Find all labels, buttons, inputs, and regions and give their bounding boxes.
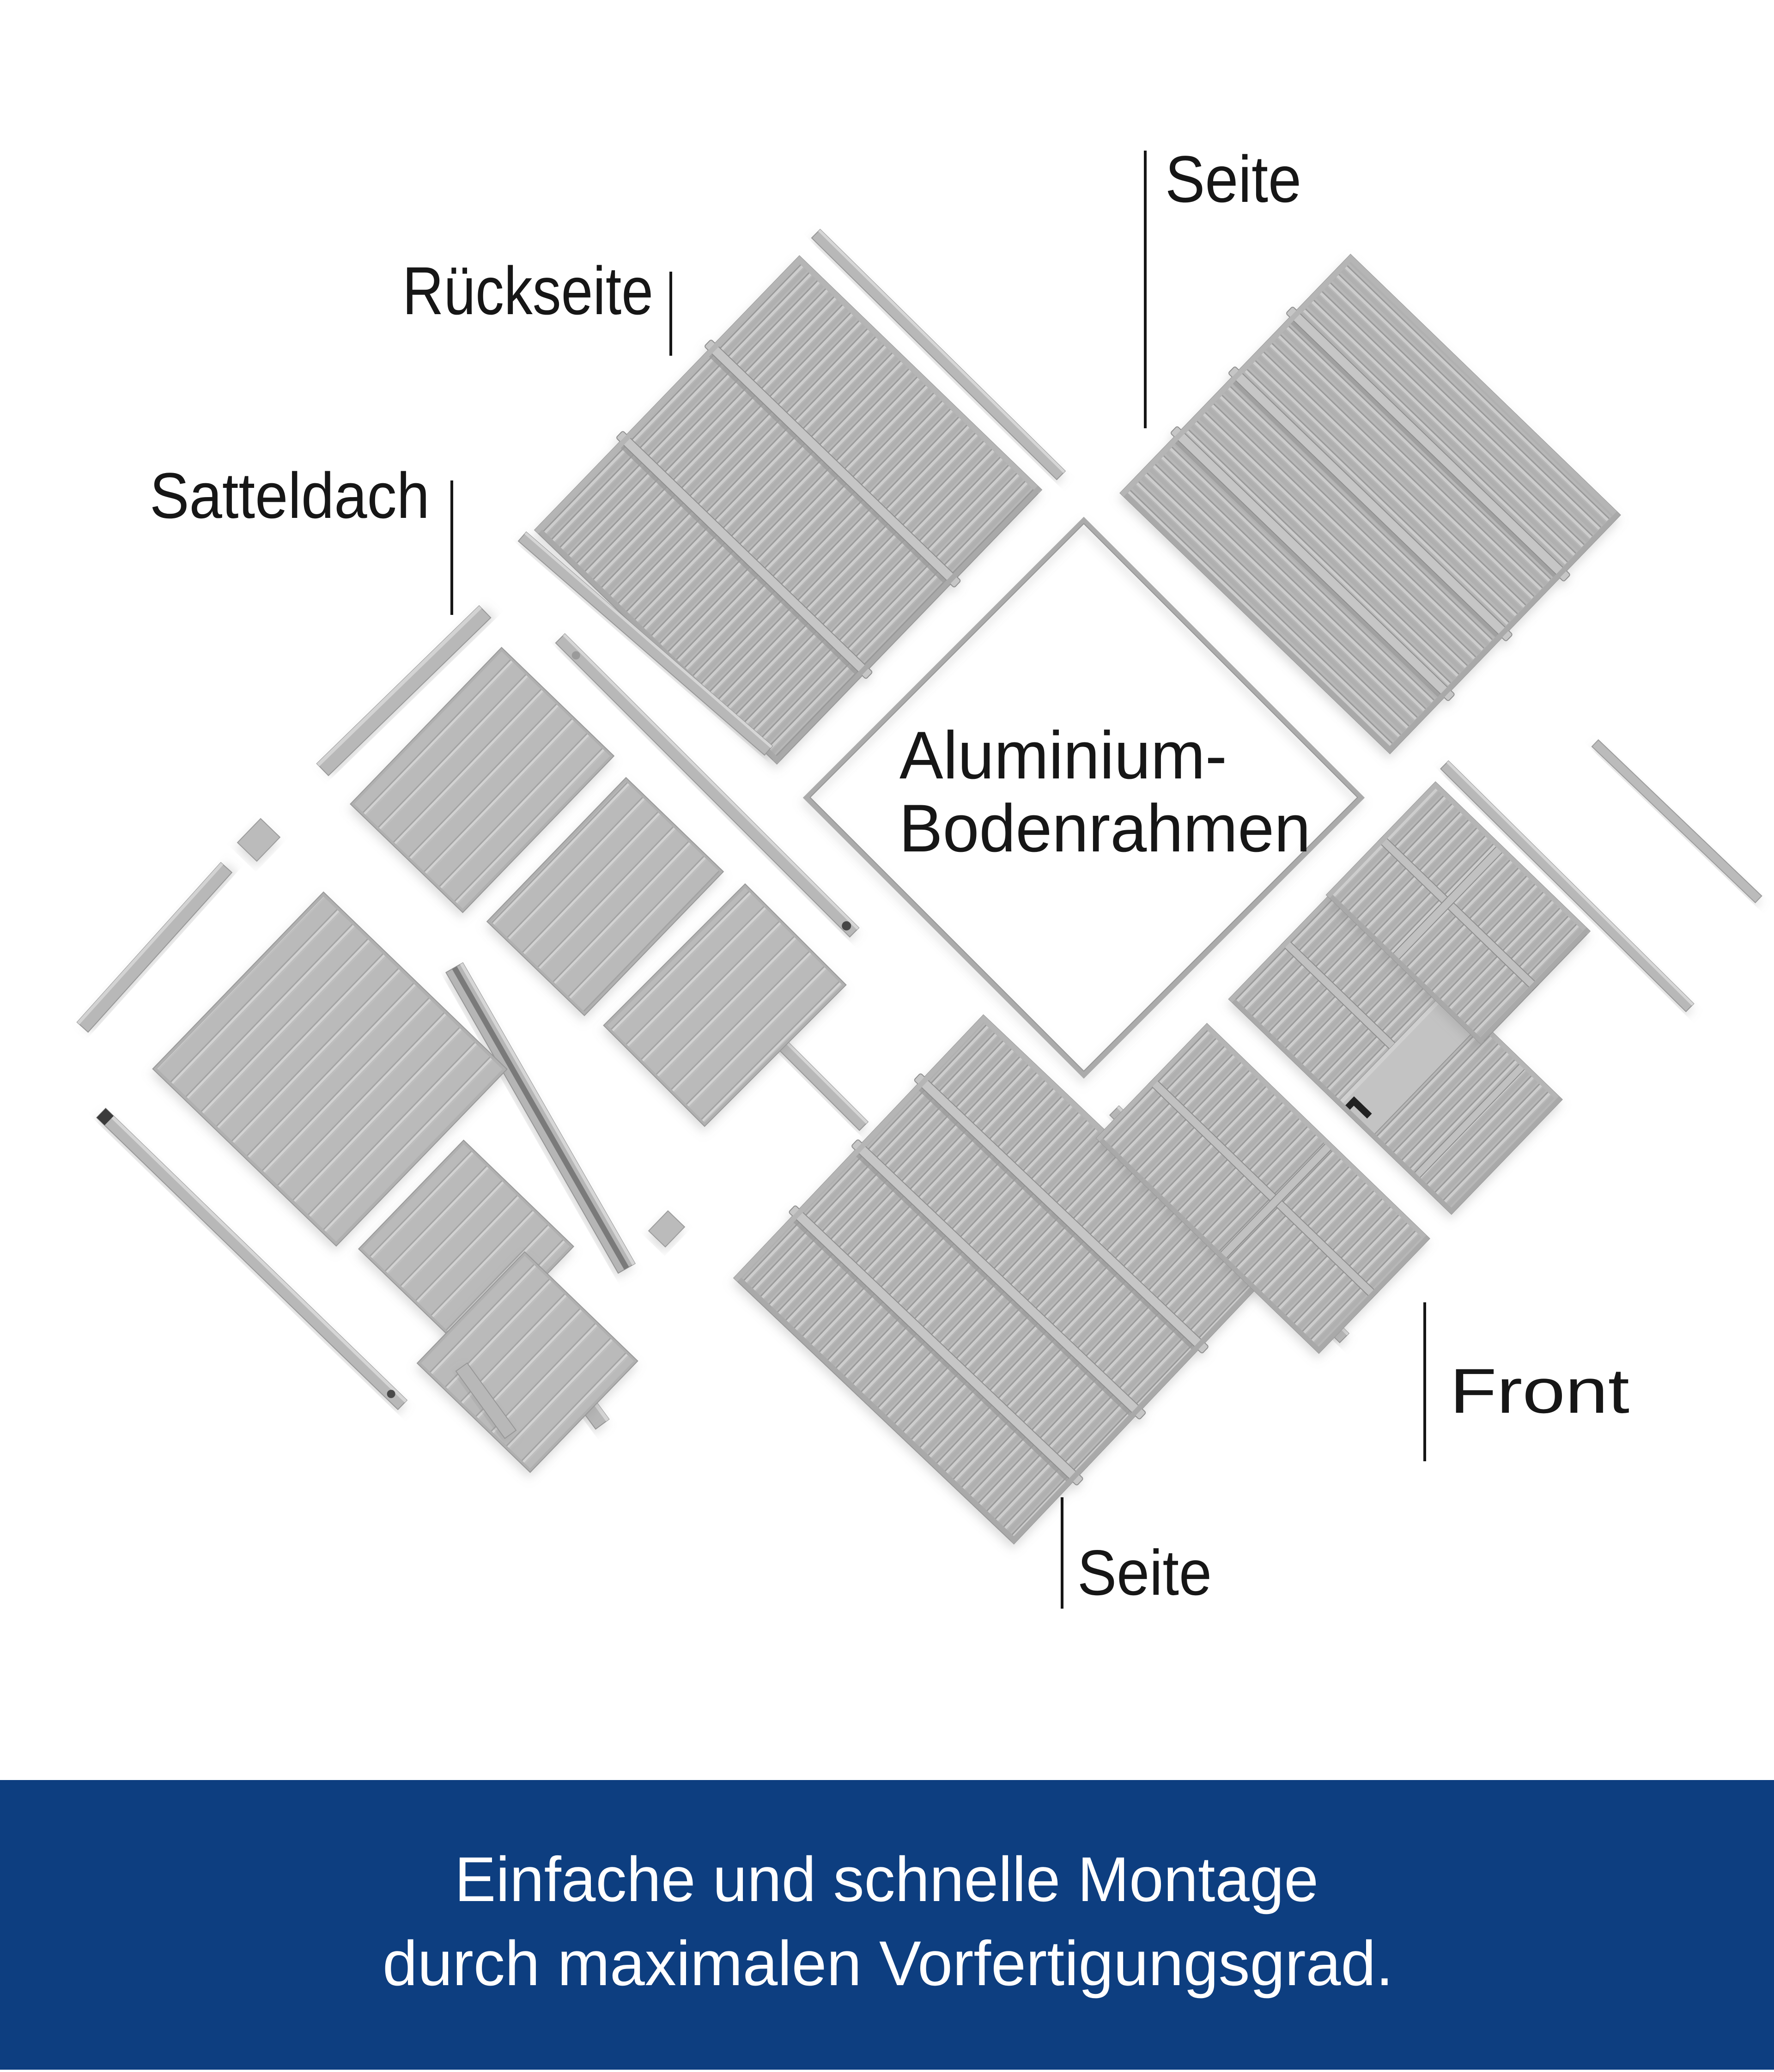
svg-text:Einfache und schnelle Montage: Einfache und schnelle Montage	[455, 1844, 1318, 1915]
svg-text:Bodenrahmen: Bodenrahmen	[899, 790, 1311, 866]
svg-text:Seite: Seite	[1077, 1537, 1212, 1609]
svg-text:durch maximalen Vorfertigungsg: durch maximalen Vorfertigungsgrad.	[383, 1928, 1393, 1999]
svg-text:Satteldach: Satteldach	[150, 459, 430, 532]
svg-text:Rückseite: Rückseite	[402, 253, 653, 329]
svg-text:Front: Front	[1450, 1356, 1629, 1427]
svg-text:Aluminium-: Aluminium-	[899, 717, 1227, 793]
svg-text:Seite: Seite	[1165, 143, 1301, 216]
